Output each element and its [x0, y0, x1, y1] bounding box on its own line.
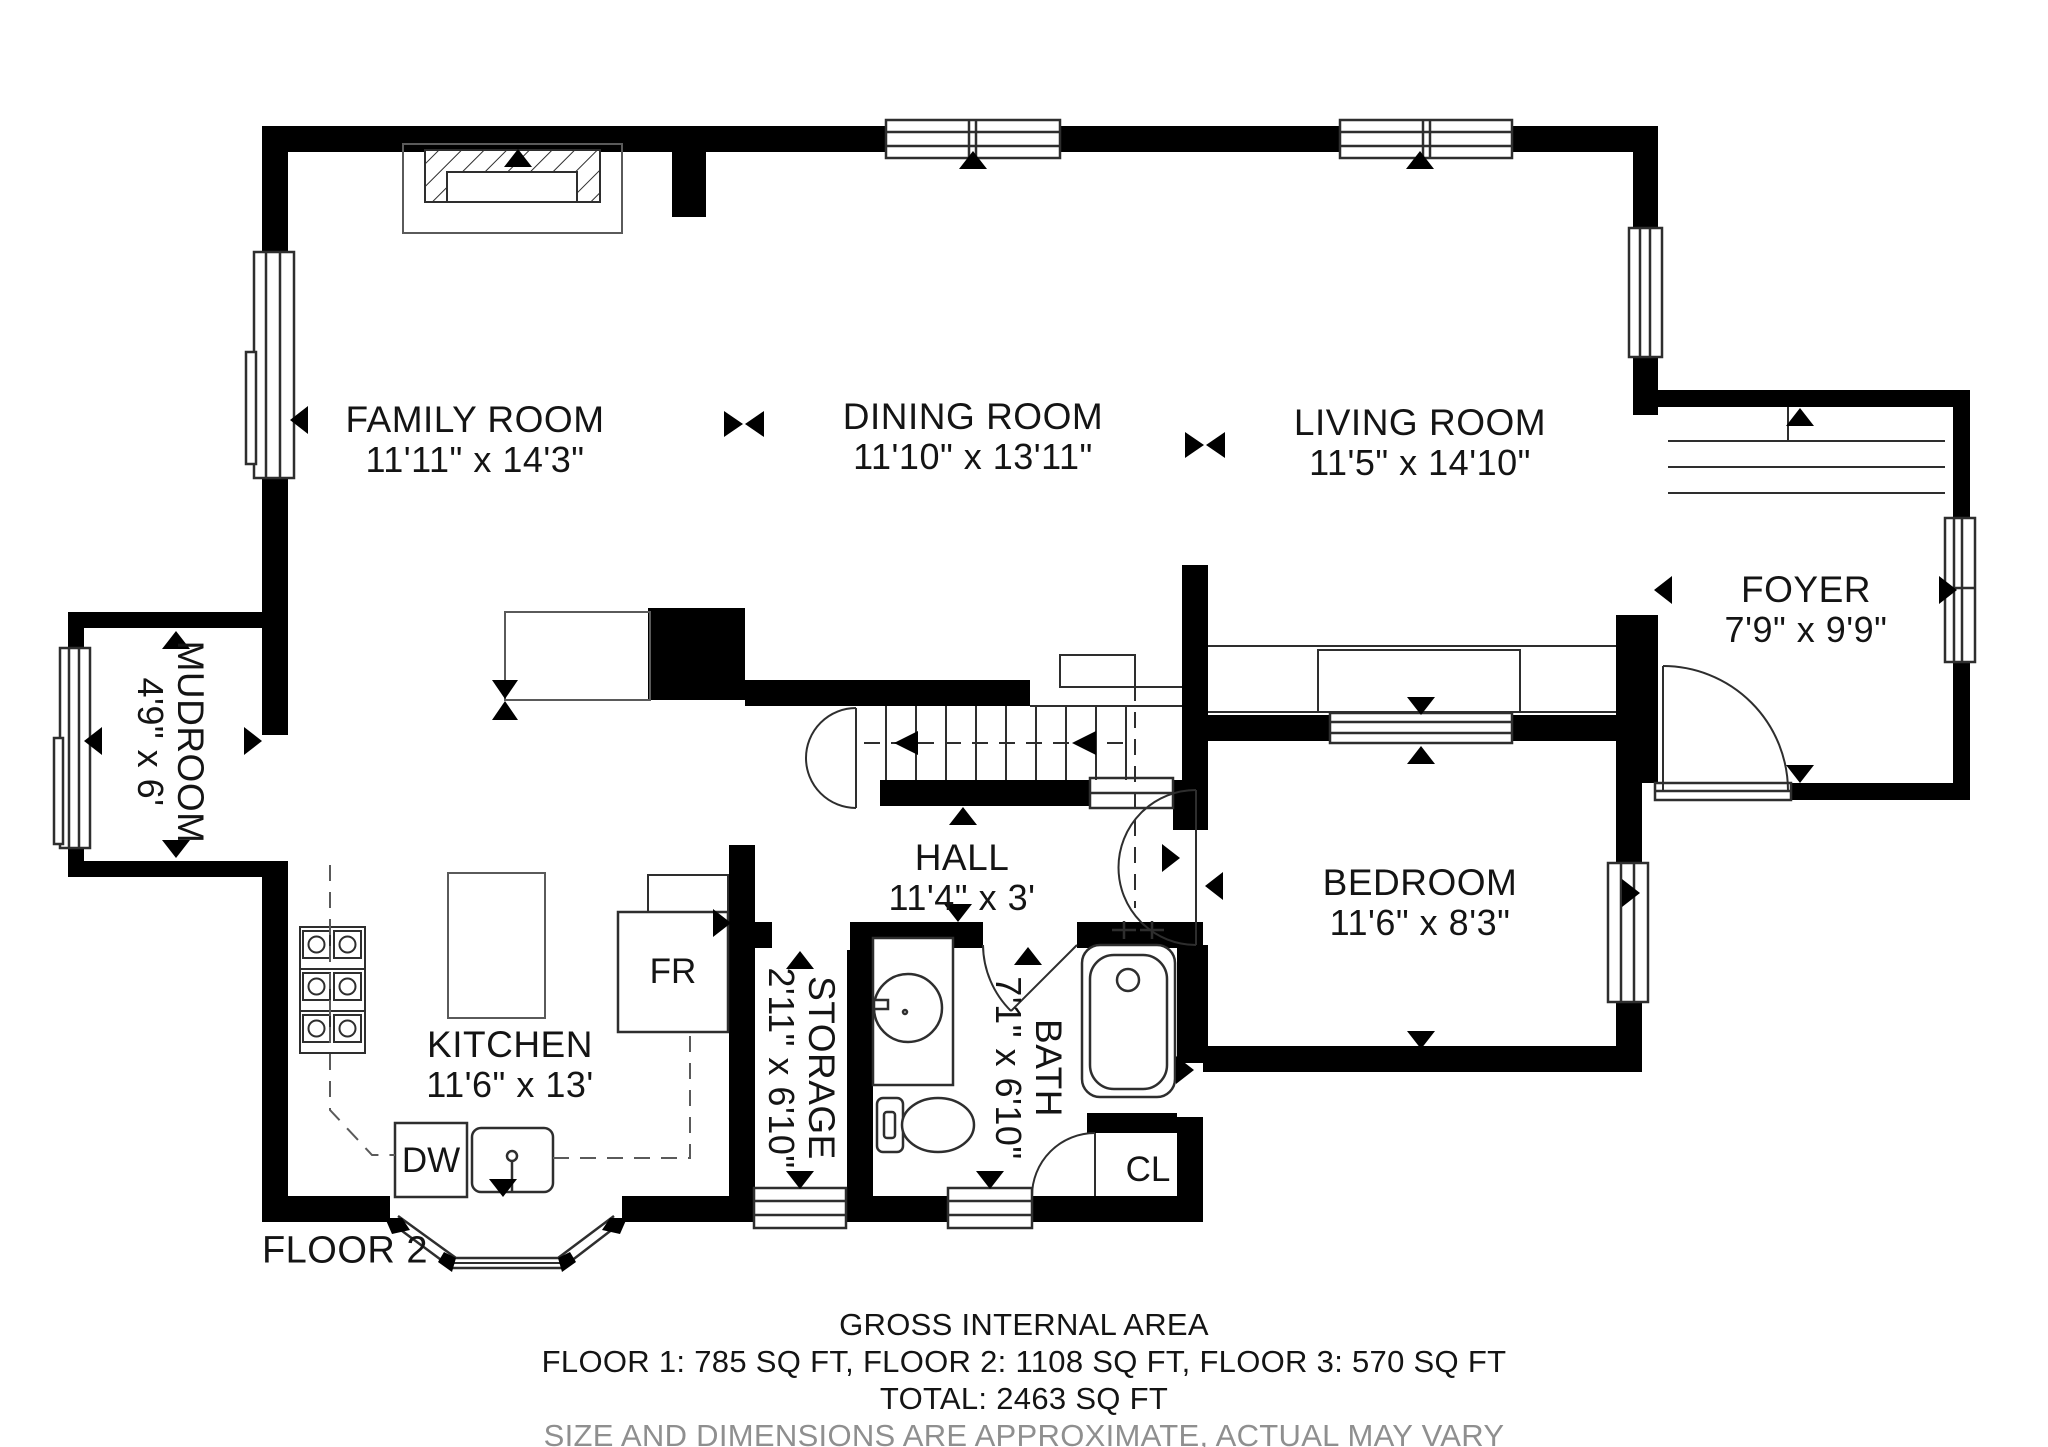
room-name: LIVING ROOM	[1294, 402, 1546, 443]
toilet-icon	[877, 1098, 974, 1152]
room-name: FOYER	[1725, 569, 1888, 610]
room-dims: 11'6" x 13'	[426, 1066, 593, 1106]
vanity-sink-icon	[873, 938, 953, 1085]
room-name: STORAGE	[800, 967, 841, 1168]
room-label-bath: BATH 7'1" x 6'10"	[987, 976, 1069, 1159]
dishwasher-label: DW	[402, 1141, 460, 1181]
room-name: DINING ROOM	[843, 396, 1103, 437]
range-icon	[300, 927, 365, 1053]
room-label-dining-room: DINING ROOM 11'10" x 13'11"	[843, 396, 1103, 478]
room-label-kitchen: KITCHEN 11'6" x 13'	[426, 1024, 593, 1106]
room-label-storage: STORAGE 2'11" x 6'10"	[760, 967, 842, 1168]
total-area-line: TOTAL: 2463 SQ FT	[0, 1380, 2048, 1417]
fridge-label: FR	[650, 952, 697, 992]
room-name: BATH	[1027, 976, 1068, 1159]
closet-label: CL	[1126, 1150, 1171, 1190]
floor-areas-line: FLOOR 1: 785 SQ FT, FLOOR 2: 1108 SQ FT,…	[0, 1343, 2048, 1380]
kitchen-island	[448, 873, 545, 1018]
footer-area-summary: GROSS INTERNAL AREA FLOOR 1: 785 SQ FT, …	[0, 1306, 2048, 1447]
room-label-bedroom: BEDROOM 11'6" x 8'3"	[1323, 862, 1518, 944]
room-dims: 11'4" x 3'	[889, 879, 1036, 919]
room-dims: 11'6" x 8'3"	[1323, 904, 1518, 944]
floorplan-page: FAMILY ROOM 11'11" x 14'3" DINING ROOM 1…	[0, 0, 2048, 1447]
bathtub-icon	[1082, 921, 1175, 1097]
room-label-mudroom: MUDROOM 4'9" x 6'	[129, 641, 211, 844]
room-dims: 11'10" x 13'11"	[843, 438, 1103, 478]
room-label-living-room: LIVING ROOM 11'5" x 14'10"	[1294, 402, 1546, 484]
room-dims: 7'9" x 9'9"	[1725, 611, 1888, 651]
room-dims: 7'1" x 6'10"	[987, 976, 1027, 1159]
room-dims: 11'11" x 14'3"	[345, 441, 604, 481]
half-wall-counter	[505, 612, 650, 700]
room-label-family-room: FAMILY ROOM 11'11" x 14'3"	[345, 399, 604, 481]
room-dims: 11'5" x 14'10"	[1294, 444, 1546, 484]
room-dims: 4'9" x 6'	[129, 641, 169, 844]
room-name: MUDROOM	[169, 641, 210, 844]
room-name: FAMILY ROOM	[345, 399, 604, 440]
room-name: HALL	[889, 837, 1036, 878]
room-label-hall: HALL 11'4" x 3'	[889, 837, 1036, 919]
room-dims: 2'11" x 6'10"	[760, 967, 800, 1168]
floor-number-label: FLOOR 2	[262, 1230, 428, 1273]
room-name: KITCHEN	[426, 1024, 593, 1065]
gross-internal-area-title: GROSS INTERNAL AREA	[0, 1306, 2048, 1343]
disclaimer-line: SIZE AND DIMENSIONS ARE APPROXIMATE, ACT…	[0, 1417, 2048, 1447]
room-name: BEDROOM	[1323, 862, 1518, 903]
room-label-foyer: FOYER 7'9" x 9'9"	[1725, 569, 1888, 651]
